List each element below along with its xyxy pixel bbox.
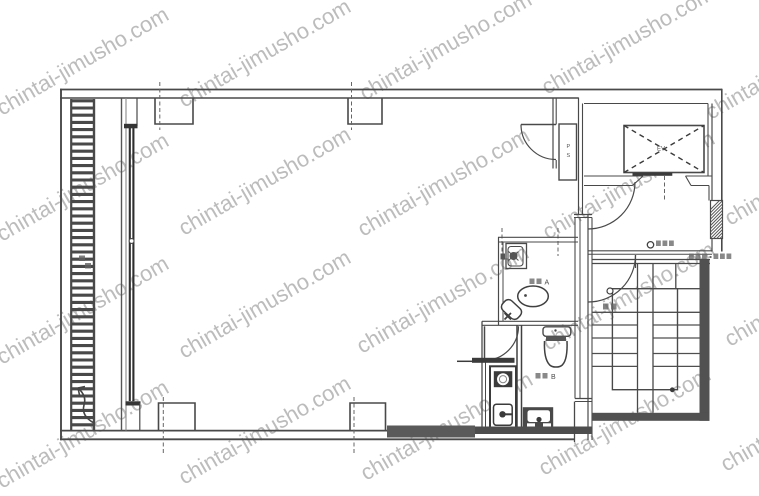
svg-text:chintai-jimusho.com: chintai-jimusho.com: [720, 111, 759, 230]
svg-text:chintai-jimusho.com: chintai-jimusho.com: [534, 361, 715, 480]
svg-text:chintai-jimusho.com: chintai-jimusho.com: [537, 0, 718, 99]
svg-text:chintai-jimusho.com: chintai-jimusho.com: [174, 121, 355, 240]
svg-text:EV: EV: [657, 147, 665, 153]
svg-text:chintai-jimusho.com: chintai-jimusho.com: [720, 232, 759, 351]
svg-text:chintai-jimusho.com: chintai-jimusho.com: [174, 0, 355, 112]
svg-text:chintai-jimusho.com: chintai-jimusho.com: [0, 374, 173, 493]
svg-text:chintai-jimusho.com: chintai-jimusho.com: [701, 5, 759, 124]
svg-text:chintai-jimusho.com: chintai-jimusho.com: [174, 244, 355, 363]
svg-text:chintai-jimusho.com: chintai-jimusho.com: [0, 1, 173, 120]
svg-text:chintai-jimusho.com: chintai-jimusho.com: [716, 357, 759, 476]
svg-text:A: A: [545, 279, 550, 286]
svg-text:P: P: [567, 144, 571, 150]
svg-text:S: S: [567, 153, 571, 159]
svg-text:B: B: [551, 374, 556, 381]
svg-text:chintai-jimusho.com: chintai-jimusho.com: [353, 122, 534, 241]
